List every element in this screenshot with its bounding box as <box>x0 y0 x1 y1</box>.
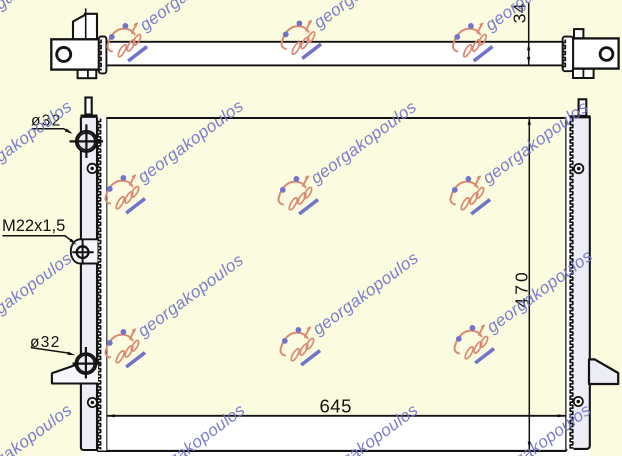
svg-text:M22x1,5: M22x1,5 <box>2 217 65 235</box>
svg-text:645: 645 <box>320 396 352 417</box>
